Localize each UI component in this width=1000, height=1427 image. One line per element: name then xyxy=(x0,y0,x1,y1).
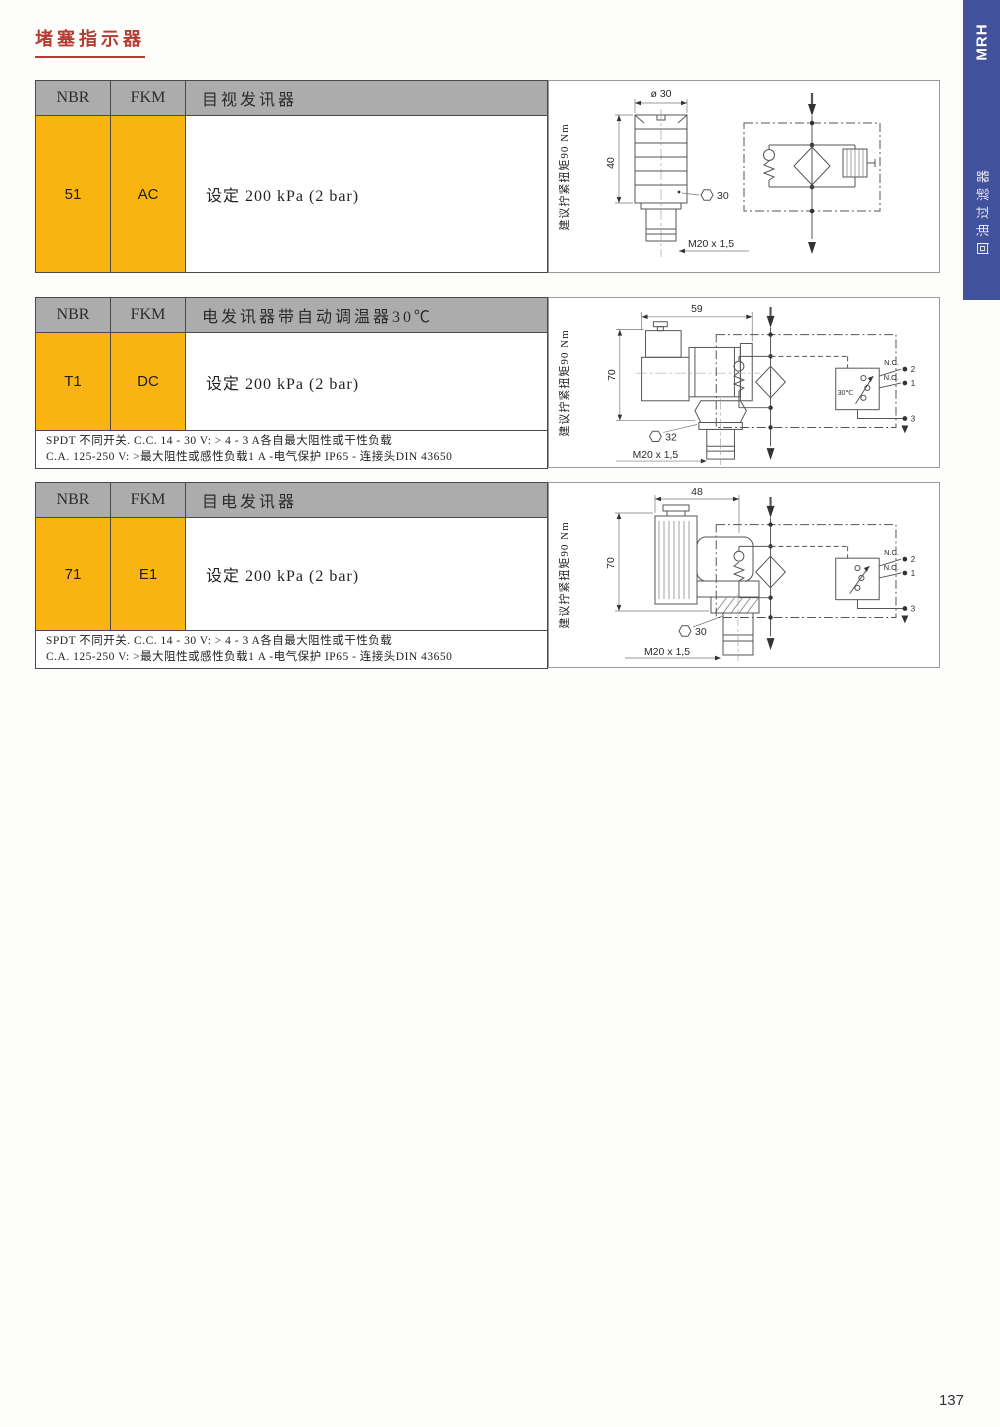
table-row: 51 AC 设定 200 kPa (2 bar) xyxy=(36,116,547,272)
terminal-1-label: 1 xyxy=(911,379,915,388)
no-label: N.O. xyxy=(884,373,899,382)
terminal-1-label: 1 xyxy=(911,569,915,578)
cell-nbr-code: 51 xyxy=(36,116,111,272)
nc-label: N.C. xyxy=(884,548,899,557)
cell-description: 设定 200 kPa (2 bar) xyxy=(186,333,547,430)
page-title: 堵塞指示器 xyxy=(35,25,145,58)
electrical-notes: SPDT 不同开关. C.C. 14 - 30 V: > 4 - 3 A各自最大… xyxy=(36,630,547,668)
page-number: 137 xyxy=(939,1392,964,1409)
header-cell-title: 目电发讯器 xyxy=(186,483,547,517)
table-header-row: NBR FKM 目电发讯器 xyxy=(36,483,547,518)
header-cell-title: 目视发讯器 xyxy=(186,81,547,115)
header-cell-nbr: NBR xyxy=(36,81,111,115)
diagram-panel: 建议拧紧扭矩90 Nm 48 70 xyxy=(548,482,940,668)
series-name-label: 回油过滤器 xyxy=(972,165,991,255)
spec-table: NBR FKM 目电发讯器 71 E1 设定 200 kPa (2 bar) S… xyxy=(35,482,548,669)
spec-table: NBR FKM 目视发讯器 51 AC 设定 200 kPa (2 bar) xyxy=(35,80,548,273)
dim-hex-label: 32 xyxy=(665,432,677,443)
header-cell-title: 电发讯器带自动调温器30℃ xyxy=(186,298,547,332)
table-header-row: NBR FKM 目视发讯器 xyxy=(36,81,547,116)
header-cell-nbr: NBR xyxy=(36,298,111,332)
cell-nbr-code: T1 xyxy=(36,333,111,430)
torque-note: 建议拧紧扭矩90 Nm xyxy=(556,521,572,628)
section-visual-electric-indicator: NBR FKM 目电发讯器 71 E1 设定 200 kPa (2 bar) S… xyxy=(35,482,940,668)
cell-fkm-code: AC xyxy=(111,116,186,272)
section-visual-indicator: NBR FKM 目视发讯器 51 AC 设定 200 kPa (2 bar) 建… xyxy=(35,80,940,273)
hydraulic-schematic-visual xyxy=(717,89,907,261)
series-code-label: MRH xyxy=(973,23,990,60)
check-valve-icon xyxy=(734,361,744,371)
header-cell-fkm: FKM xyxy=(111,483,186,517)
dim-diameter-label: ø 30 xyxy=(650,88,671,100)
note-line: C.A. 125-250 V: >最大阻性或感性负载1 A -电气保护 IP65… xyxy=(46,650,537,666)
hydraulic-electric-schematic-thermostat: 30℃ N.C. 2 N.O. 1 3 xyxy=(701,303,929,463)
header-cell-nbr: NBR xyxy=(36,483,111,517)
note-line: SPDT 不同开关. C.C. 14 - 30 V: > 4 - 3 A各自最大… xyxy=(46,434,537,450)
nc-label: N.C. xyxy=(884,358,899,367)
terminal-2-label: 2 xyxy=(911,555,915,564)
section-electric-thermostat-indicator: NBR FKM 电发讯器带自动调温器30℃ T1 DC 设定 200 kPa (… xyxy=(35,297,940,468)
cell-description: 设定 200 kPa (2 bar) xyxy=(186,518,547,630)
hexagon-icon xyxy=(701,190,713,200)
terminal-3-label: 3 xyxy=(911,605,916,614)
no-label: N.O. xyxy=(884,563,899,572)
cell-fkm-code: DC xyxy=(111,333,186,430)
thread-label: M20 x 1,5 xyxy=(644,646,690,658)
pressure-switch-icon xyxy=(836,558,879,599)
thread-label: M20 x 1,5 xyxy=(633,450,679,461)
torque-note: 建议拧紧扭矩90 Nm xyxy=(556,123,572,230)
thermostat-temp-label: 30℃ xyxy=(838,390,854,397)
table-row: T1 DC 设定 200 kPa (2 bar) xyxy=(36,333,547,430)
terminal-3-label: 3 xyxy=(911,415,916,424)
terminal-2-label: 2 xyxy=(911,365,915,374)
note-line: SPDT 不同开关. C.C. 14 - 30 V: > 4 - 3 A各自最大… xyxy=(46,634,537,650)
table-row: 71 E1 设定 200 kPa (2 bar) xyxy=(36,518,547,630)
cell-fkm-code: E1 xyxy=(111,518,186,630)
header-cell-fkm: FKM xyxy=(111,298,186,332)
electrical-notes: SPDT 不同开关. C.C. 14 - 30 V: > 4 - 3 A各自最大… xyxy=(36,430,547,468)
hydraulic-electric-schematic: N.C. 2 N.O. 1 3 xyxy=(701,493,929,653)
table-header-row: NBR FKM 电发讯器带自动调温器30℃ xyxy=(36,298,547,333)
dim-height-label: 40 xyxy=(605,157,617,169)
hexagon-icon xyxy=(679,626,691,636)
side-tab-bar: MRH 回油过滤器 xyxy=(963,0,1000,300)
dim-height-label: 70 xyxy=(607,369,618,381)
diagram-panel: 建议拧紧扭矩90 Nm ø 30 xyxy=(548,80,940,273)
check-valve-icon xyxy=(764,150,775,161)
torque-note: 建议拧紧扭矩90 Nm xyxy=(556,329,572,436)
cell-nbr-code: 71 xyxy=(36,518,111,630)
header-cell-fkm: FKM xyxy=(111,81,186,115)
diagram-panel: 建议拧紧扭矩90 Nm 59 70 xyxy=(548,297,940,468)
cell-description: 设定 200 kPa (2 bar) xyxy=(186,116,547,272)
hexagon-icon xyxy=(649,431,661,441)
note-line: C.A. 125-250 V: >最大阻性或感性负载1 A -电气保护 IP65… xyxy=(46,450,537,466)
check-valve-icon xyxy=(734,551,744,561)
spec-table: NBR FKM 电发讯器带自动调温器30℃ T1 DC 设定 200 kPa (… xyxy=(35,297,548,469)
dim-height-label: 70 xyxy=(605,557,617,569)
catalog-page: 堵塞指示器 MRH 回油过滤器 NBR FKM 目视发讯器 51 AC 设定 2… xyxy=(0,0,1000,1427)
